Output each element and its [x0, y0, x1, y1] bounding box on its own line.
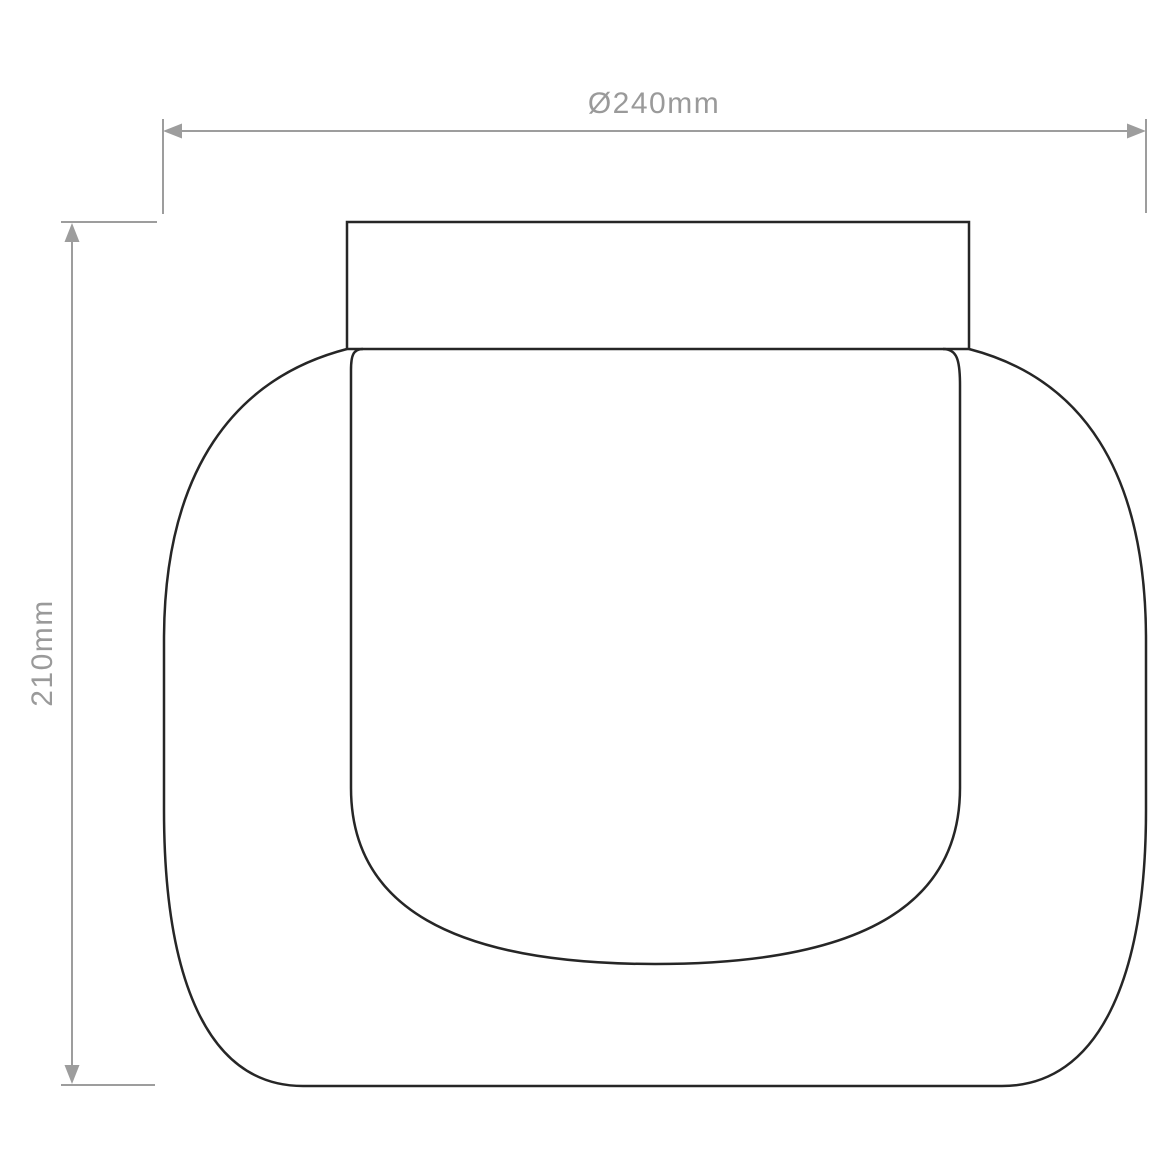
fixture-outline [164, 222, 1146, 1086]
canopy-rectangle [347, 222, 969, 349]
dimension-drawing: Ø240mm 210mm [0, 0, 1170, 1170]
arrow-up-icon [65, 223, 80, 242]
height-dimension-label: 210mm [26, 599, 59, 707]
width-dimension-label: Ø240mm [588, 87, 720, 120]
arrow-down-icon [65, 1065, 80, 1084]
outer-shade-profile [164, 349, 1146, 1086]
diagram-canvas: Ø240mm 210mm [0, 0, 1170, 1170]
arrow-left-icon [163, 124, 182, 139]
width-dimension: Ø240mm [163, 87, 1146, 214]
height-dimension: 210mm [26, 222, 157, 1085]
arrow-right-icon [1127, 124, 1146, 139]
inner-diffuser-profile [351, 349, 960, 964]
